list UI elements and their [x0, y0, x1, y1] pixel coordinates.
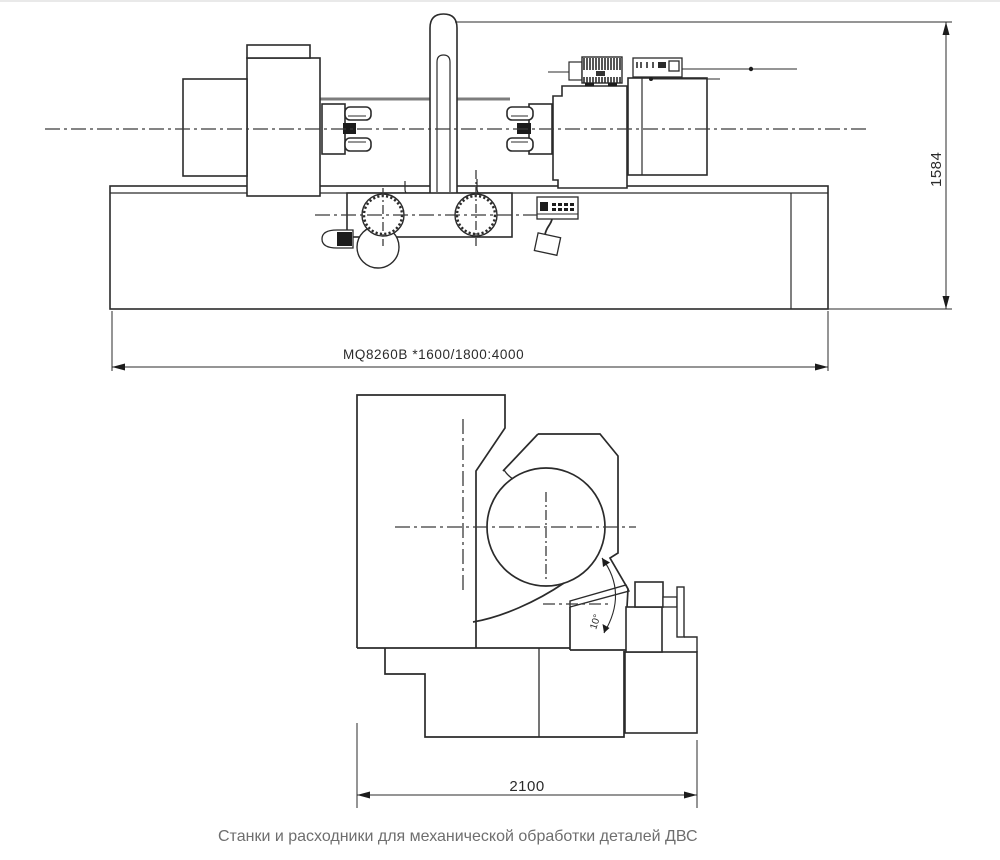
motor-fins-top — [584, 58, 620, 70]
pendant-screen — [540, 202, 548, 211]
headstock-body — [247, 58, 320, 196]
headstock-motor-block — [183, 79, 247, 176]
wheelhead-block — [628, 78, 707, 175]
model-dimension-label: MQ8260B *1600/1800:4000 — [343, 347, 524, 362]
right-lower-block — [625, 652, 697, 733]
control-panel-button — [669, 61, 679, 71]
motor-nameplate — [596, 71, 605, 76]
wheel-guard-column — [430, 14, 457, 196]
column-outline — [430, 14, 457, 196]
right-top-block — [635, 582, 663, 607]
leader-dot — [649, 77, 653, 81]
motor-end-bracket — [569, 62, 582, 80]
control-panel-display — [658, 62, 666, 68]
right-vertical-bar — [677, 587, 684, 637]
cable-junction-dot — [749, 67, 753, 71]
feed-knob-grip — [337, 232, 352, 246]
motor-foot-left — [585, 83, 594, 87]
motor-foot-right — [608, 83, 617, 87]
motor-fins-bottom — [584, 77, 620, 83]
technical-drawing-page: MQ8260B *1600/1800:4000 1584 — [0, 0, 1000, 860]
height-dimension-label: 1584 — [928, 152, 945, 187]
machine-drawing: MQ8260B *1600/1800:4000 1584 — [0, 0, 1000, 860]
pendant-plug — [534, 233, 560, 255]
right-connector-tab — [663, 597, 677, 607]
tailstock-body — [553, 86, 627, 188]
right-mid-block — [626, 607, 662, 652]
width-dimension-label: 2100 — [509, 778, 544, 795]
headstock-top-cap — [247, 45, 310, 58]
page-caption: Станки и расходники для механической обр… — [218, 828, 698, 845]
